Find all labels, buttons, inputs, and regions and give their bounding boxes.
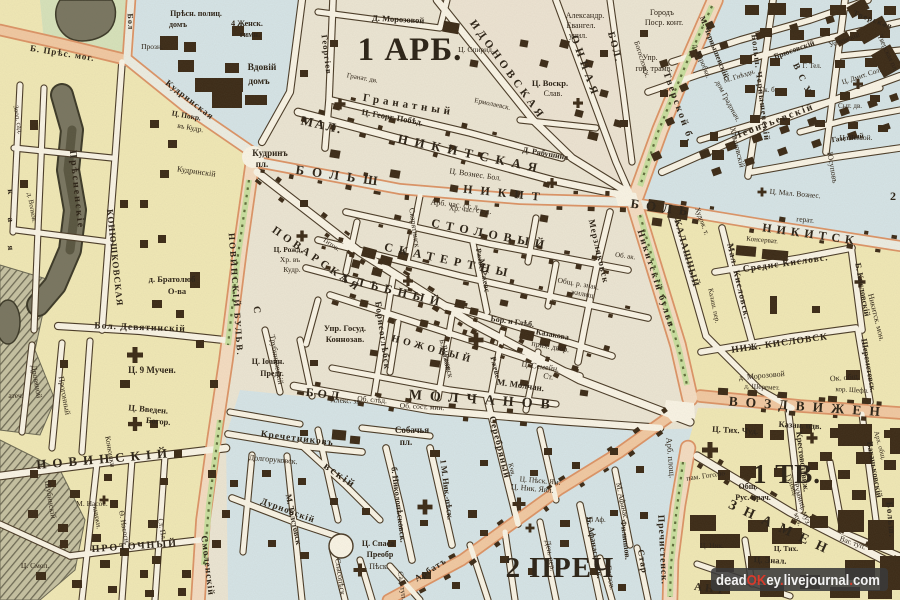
svg-text:deadOKey.livejournal.com: deadOKey.livejournal.com — [716, 572, 880, 589]
